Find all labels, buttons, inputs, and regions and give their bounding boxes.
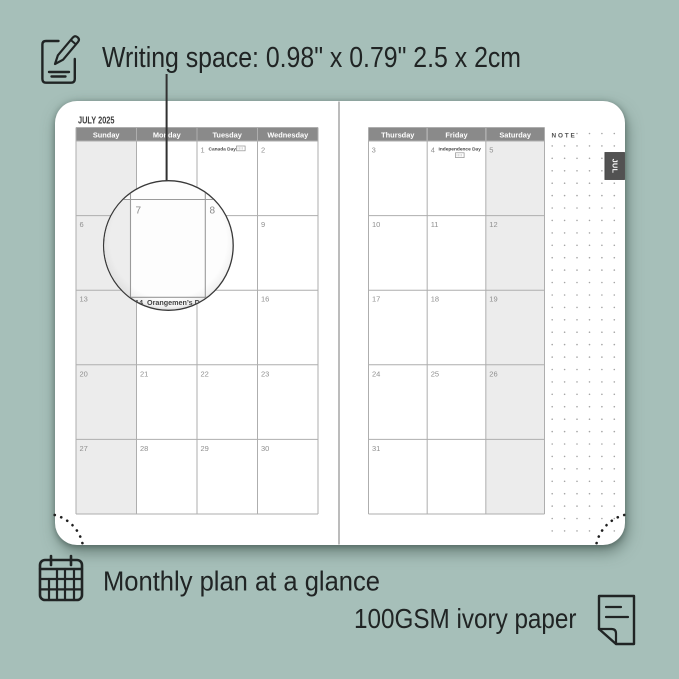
svg-text:29: 29 <box>201 444 209 453</box>
svg-text:12: 12 <box>489 220 497 229</box>
svg-text:23: 23 <box>261 369 269 378</box>
svg-text:NOTE: NOTE <box>552 133 577 140</box>
svg-text:Sunday: Sunday <box>93 130 121 139</box>
svg-text:Monthly plan at a glance: Monthly plan at a glance <box>103 566 380 597</box>
svg-text:17: 17 <box>372 295 380 304</box>
svg-text:21: 21 <box>140 369 148 378</box>
svg-text:19: 19 <box>489 295 497 304</box>
svg-text:27: 27 <box>80 444 88 453</box>
svg-text:16: 16 <box>261 295 269 304</box>
svg-text:6: 6 <box>80 220 84 229</box>
svg-text:Thursday: Thursday <box>381 130 415 139</box>
svg-text:1: 1 <box>201 146 205 155</box>
svg-text:5: 5 <box>489 146 493 155</box>
svg-text:24: 24 <box>372 369 380 378</box>
svg-text:Independence Day: Independence Day <box>439 147 482 153</box>
svg-text:13: 13 <box>80 295 88 304</box>
svg-text:Friday: Friday <box>445 130 468 139</box>
svg-text:JULY 2025: JULY 2025 <box>78 116 115 127</box>
svg-text:2: 2 <box>261 146 265 155</box>
svg-text:Wednesday: Wednesday <box>267 130 309 139</box>
svg-text:100GSM ivory paper: 100GSM ivory paper <box>354 603 577 634</box>
svg-text:26: 26 <box>489 369 497 378</box>
svg-text:20: 20 <box>80 369 88 378</box>
svg-text:28: 28 <box>140 444 148 453</box>
svg-text:Canada Day: Canada Day <box>209 147 237 153</box>
svg-text:Writing space: 0.98" x 0.79" 2: Writing space: 0.98" x 0.79" 2.5 x 2cm <box>102 42 521 74</box>
svg-text:25: 25 <box>431 369 439 378</box>
svg-text:11: 11 <box>431 220 439 229</box>
svg-text:30: 30 <box>261 444 269 453</box>
svg-text:Tuesday: Tuesday <box>212 130 242 139</box>
svg-text:22: 22 <box>201 369 209 378</box>
svg-text:JUL: JUL <box>611 159 620 174</box>
svg-text:18: 18 <box>431 295 439 304</box>
svg-text:4: 4 <box>431 146 435 155</box>
svg-text:9: 9 <box>261 220 265 229</box>
svg-text:Saturday: Saturday <box>499 130 532 139</box>
svg-text:31: 31 <box>372 444 380 453</box>
svg-text:3: 3 <box>372 146 376 155</box>
svg-text:10: 10 <box>372 220 380 229</box>
